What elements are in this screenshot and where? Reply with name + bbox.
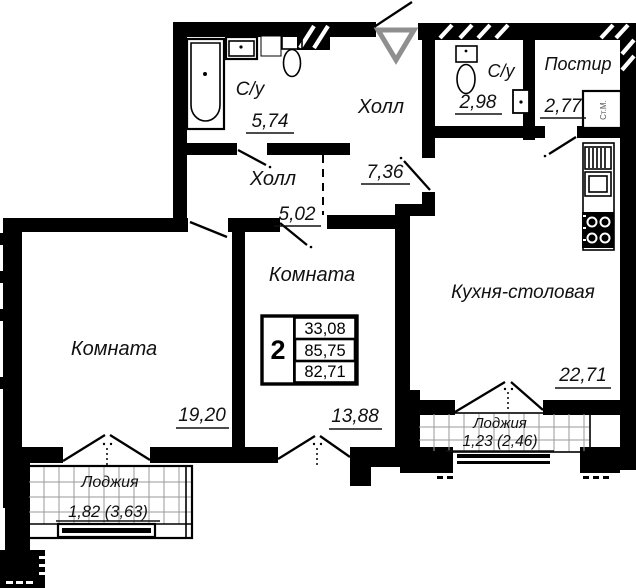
rooms-count: 2: [270, 335, 285, 365]
room-middle-area: 13,88: [331, 406, 379, 427]
total-area-value: 85,75: [304, 342, 345, 360]
kitchen-area: 22,71: [558, 365, 607, 386]
kitchen-label: Кухня-столовая: [451, 282, 595, 303]
fridge-icon: [585, 147, 611, 169]
living-area-value: 33,08: [304, 320, 345, 338]
info-box: 2 33,08 85,75 82,71: [262, 316, 357, 384]
bathtub-icon: [187, 39, 224, 129]
hall-inner-area: 5,02: [279, 204, 316, 225]
reduced-area-value: 82,71: [304, 363, 345, 381]
hall-entry-label: Холл: [357, 96, 404, 118]
loggia-kitchen-area: 1,23 (2,46): [463, 433, 538, 450]
kitchen-sink-icon: [585, 172, 611, 196]
floor-plan: Ст.М. С/у 5,74 Холл 7,36 С/у 2,98: [0, 0, 636, 588]
laundry-label: Постир: [544, 54, 611, 74]
room-middle-label: Комната: [269, 264, 355, 286]
laundry-area: 2,77: [544, 96, 583, 117]
loggia-left-area: 1,82 (3,63): [68, 503, 148, 521]
bath-guest-area: 2,98: [459, 92, 497, 113]
hall-inner-label: Холл: [249, 168, 296, 190]
washing-machine-icon: Ст.М.: [583, 91, 621, 128]
french-door-room-middle: [278, 436, 350, 468]
bath-main-area: 5,74: [252, 111, 289, 132]
bath-guest-label: С/у: [488, 61, 516, 81]
french-door-room-left: [63, 435, 150, 468]
hall-entry-area: 7,36: [367, 162, 404, 183]
entry-arrow-icon: [374, 2, 414, 60]
french-door-kitchen: [455, 382, 543, 412]
loggia-left-label: Лоджия: [80, 474, 139, 491]
floor-plan-svg: Ст.М. С/у 5,74 Холл 7,36 С/у 2,98: [0, 0, 636, 588]
sink-icon: [226, 37, 257, 59]
toilet-guest-icon: [456, 46, 477, 94]
washing-machine-label: Ст.М.: [599, 100, 608, 120]
room-left-area: 19,20: [178, 405, 226, 426]
bath-main-label: С/у: [236, 79, 266, 100]
stove-icon: [582, 212, 614, 248]
kitchen-counter: [582, 143, 614, 250]
room-left-label: Комната: [71, 338, 157, 360]
loggia-kitchen-label: Лоджия: [472, 415, 527, 432]
niche-box: [261, 36, 281, 56]
